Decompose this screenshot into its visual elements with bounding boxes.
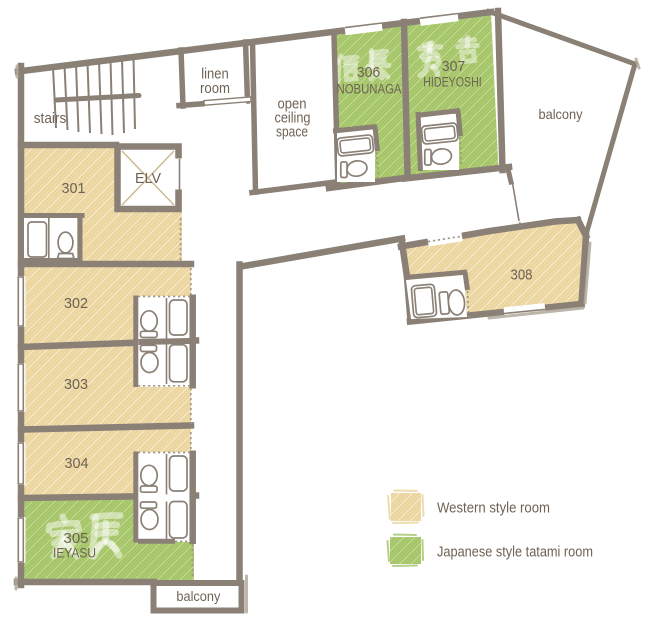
svg-text:NOBUNAGA: NOBUNAGA — [337, 82, 402, 97]
svg-text:Japanese style tatami room: Japanese style tatami room — [437, 544, 593, 561]
svg-text:space: space — [276, 124, 308, 141]
svg-text:308: 308 — [511, 267, 533, 284]
svg-text:stairs: stairs — [34, 110, 67, 127]
svg-text:301: 301 — [62, 180, 86, 197]
svg-text:Western style room: Western style room — [437, 500, 550, 517]
svg-text:304: 304 — [65, 455, 89, 472]
svg-text:305: 305 — [64, 530, 89, 547]
svg-text:IEYASU: IEYASU — [53, 546, 96, 561]
svg-text:ELV: ELV — [135, 171, 161, 187]
svg-text:balcony: balcony — [539, 106, 583, 122]
svg-text:balcony: balcony — [176, 589, 220, 604]
svg-text:306: 306 — [357, 64, 381, 81]
svg-text:302: 302 — [64, 295, 88, 312]
svg-text:307: 307 — [442, 58, 466, 75]
svg-text:303: 303 — [64, 376, 88, 393]
svg-text:HIDEYOSHI: HIDEYOSHI — [423, 75, 482, 90]
svg-text:room: room — [200, 80, 230, 97]
